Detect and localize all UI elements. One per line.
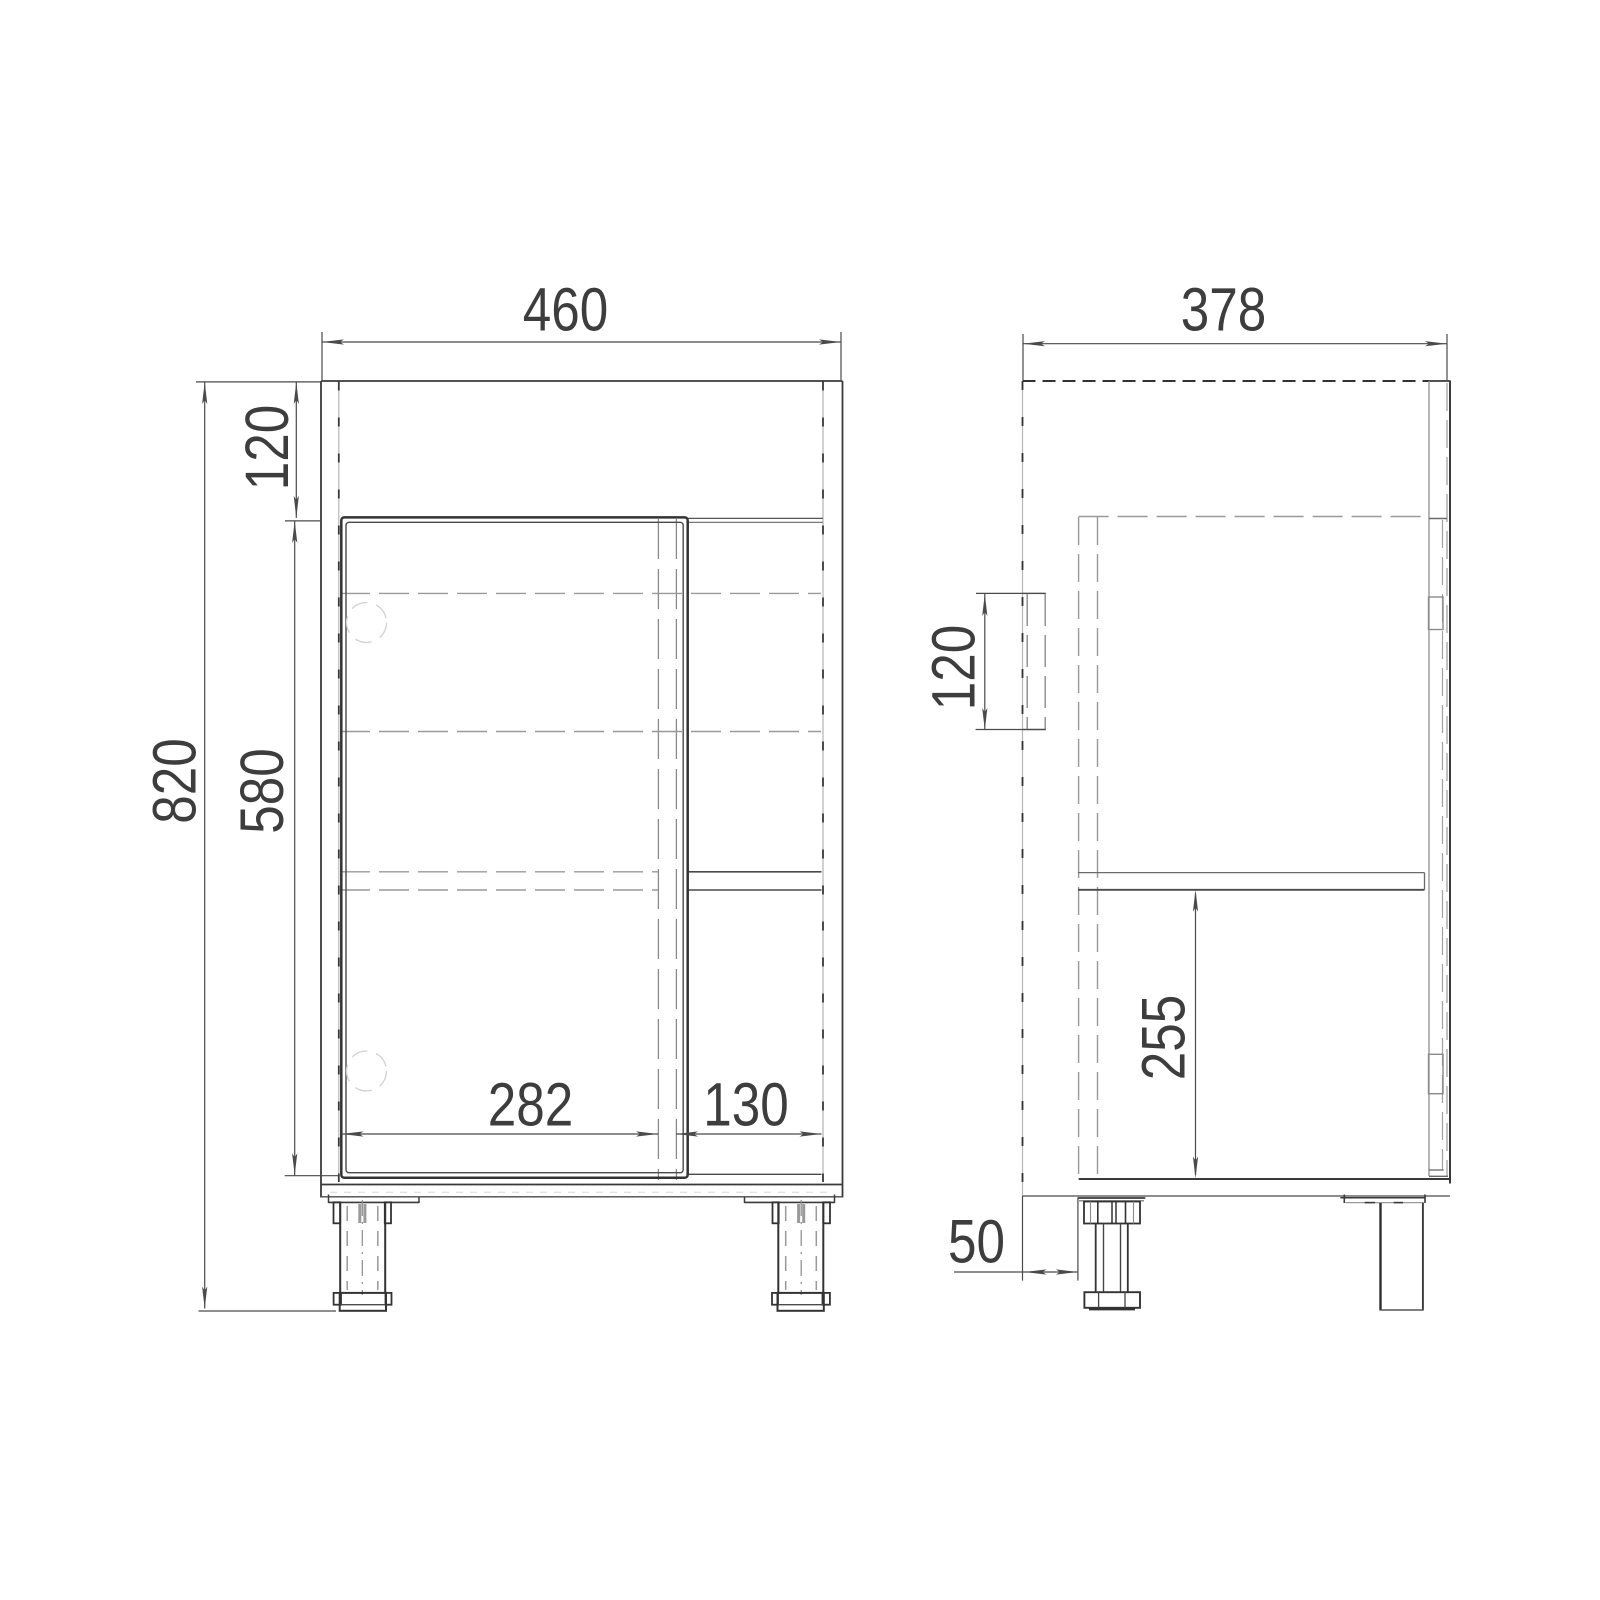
svg-text:378: 378 <box>1181 275 1266 343</box>
svg-text:255: 255 <box>1129 995 1197 1080</box>
svg-text:120: 120 <box>233 405 301 490</box>
svg-text:282: 282 <box>488 1070 573 1138</box>
svg-text:460: 460 <box>523 275 608 343</box>
svg-text:820: 820 <box>140 738 208 823</box>
svg-text:50: 50 <box>948 1207 1005 1275</box>
svg-text:580: 580 <box>228 748 296 833</box>
svg-text:120: 120 <box>919 625 987 710</box>
svg-text:130: 130 <box>703 1070 788 1138</box>
